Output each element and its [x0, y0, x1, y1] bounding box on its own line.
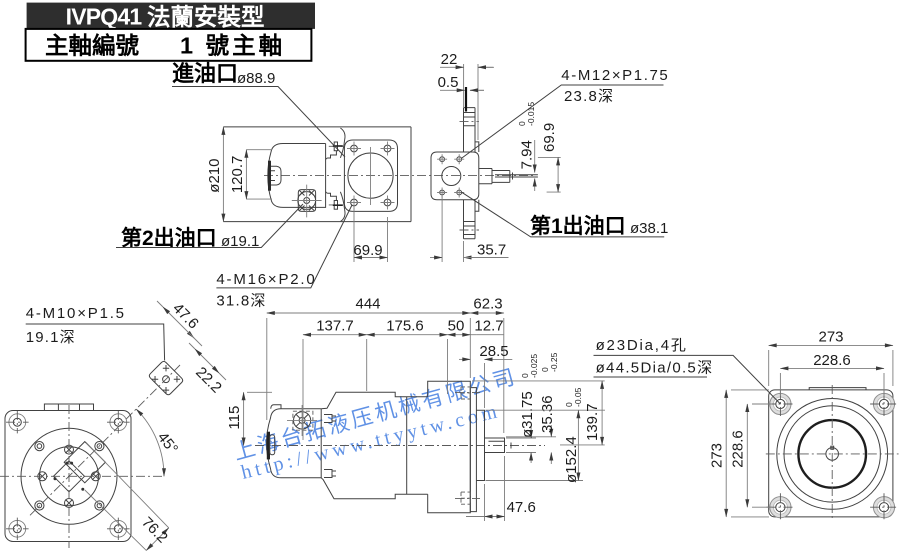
svg-text:69.9: 69.9	[541, 123, 558, 152]
svg-text:22: 22	[441, 51, 458, 68]
svg-text:第2出油口: 第2出油口	[121, 226, 217, 250]
svg-text:69.9: 69.9	[353, 242, 382, 259]
svg-text:273: 273	[709, 443, 726, 468]
svg-text:35.7: 35.7	[477, 242, 506, 259]
svg-text:主軸編號: 主軸編號	[45, 32, 139, 59]
svg-text:175.6: 175.6	[386, 318, 424, 335]
svg-text:273: 273	[818, 328, 843, 345]
svg-text:23.8深: 23.8深	[564, 88, 614, 105]
svg-text:1 號主軸: 1 號主軸	[180, 33, 285, 59]
svg-text:0.5: 0.5	[438, 74, 459, 91]
svg-text:-0.25: -0.25	[549, 352, 559, 372]
svg-text:ø152.4: ø152.4	[563, 436, 580, 483]
svg-text:12.7: 12.7	[474, 318, 503, 335]
svg-text:50: 50	[448, 318, 465, 335]
svg-text:第1出油口: 第1出油口	[530, 214, 626, 238]
svg-text:ø23Dia,4孔: ø23Dia,4孔	[596, 337, 688, 354]
svg-text:4-M10×P1.5: 4-M10×P1.5	[26, 305, 126, 322]
svg-text:115: 115	[226, 406, 243, 430]
svg-text:28.5: 28.5	[479, 343, 508, 360]
svg-text:4-M16×P2.0: 4-M16×P2.0	[216, 271, 316, 288]
svg-text:ø31.75: ø31.75	[519, 391, 536, 438]
svg-text:4-M12×P1.75: 4-M12×P1.75	[561, 67, 669, 84]
svg-text:19.1深: 19.1深	[26, 329, 76, 346]
svg-text:ø88.9: ø88.9	[237, 70, 275, 87]
svg-text:ø210: ø210	[206, 158, 223, 192]
svg-text:-0.05: -0.05	[573, 387, 583, 407]
svg-text:ø38.1: ø38.1	[630, 220, 668, 237]
svg-text:進油口: 進油口	[172, 61, 238, 86]
svg-text:139.7: 139.7	[584, 403, 601, 441]
svg-text:120.7: 120.7	[229, 156, 246, 194]
svg-text:47.6: 47.6	[507, 499, 536, 516]
svg-text:-0.025: -0.025	[529, 354, 539, 378]
svg-text:IVPQ41: IVPQ41	[66, 4, 143, 30]
svg-text:62.3: 62.3	[473, 296, 502, 313]
svg-text:35.36: 35.36	[539, 395, 556, 433]
svg-text:228.6: 228.6	[730, 430, 747, 468]
svg-text:31.8深: 31.8深	[216, 293, 266, 310]
svg-text:137.7: 137.7	[316, 318, 354, 335]
svg-text:444: 444	[355, 296, 380, 313]
svg-text:228.6: 228.6	[813, 352, 851, 369]
svg-text:法蘭安裝型: 法蘭安裝型	[147, 3, 265, 30]
svg-text:7.94: 7.94	[519, 140, 536, 169]
svg-text:ø44.5Dia/0.5深: ø44.5Dia/0.5深	[596, 360, 714, 377]
